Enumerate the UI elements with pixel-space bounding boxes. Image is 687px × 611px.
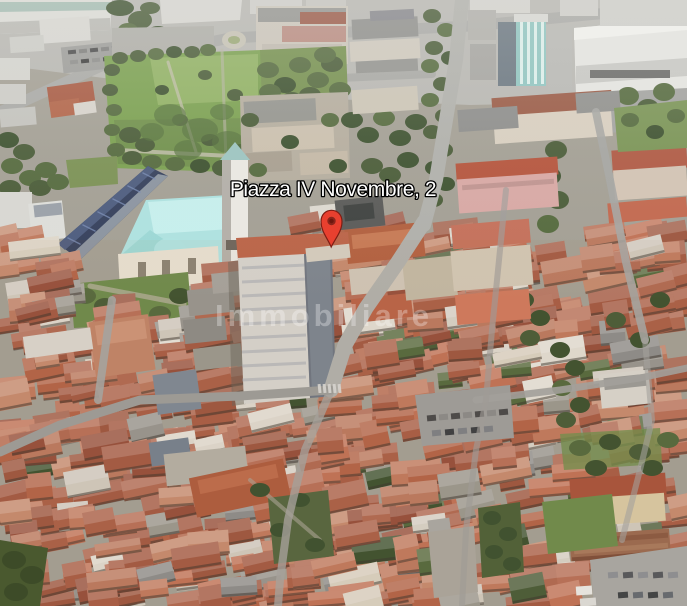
svg-text:Immobiliare: Immobiliare xyxy=(215,298,433,333)
svg-text:Piazza IV Novembre, 2: Piazza IV Novembre, 2 xyxy=(230,178,436,201)
